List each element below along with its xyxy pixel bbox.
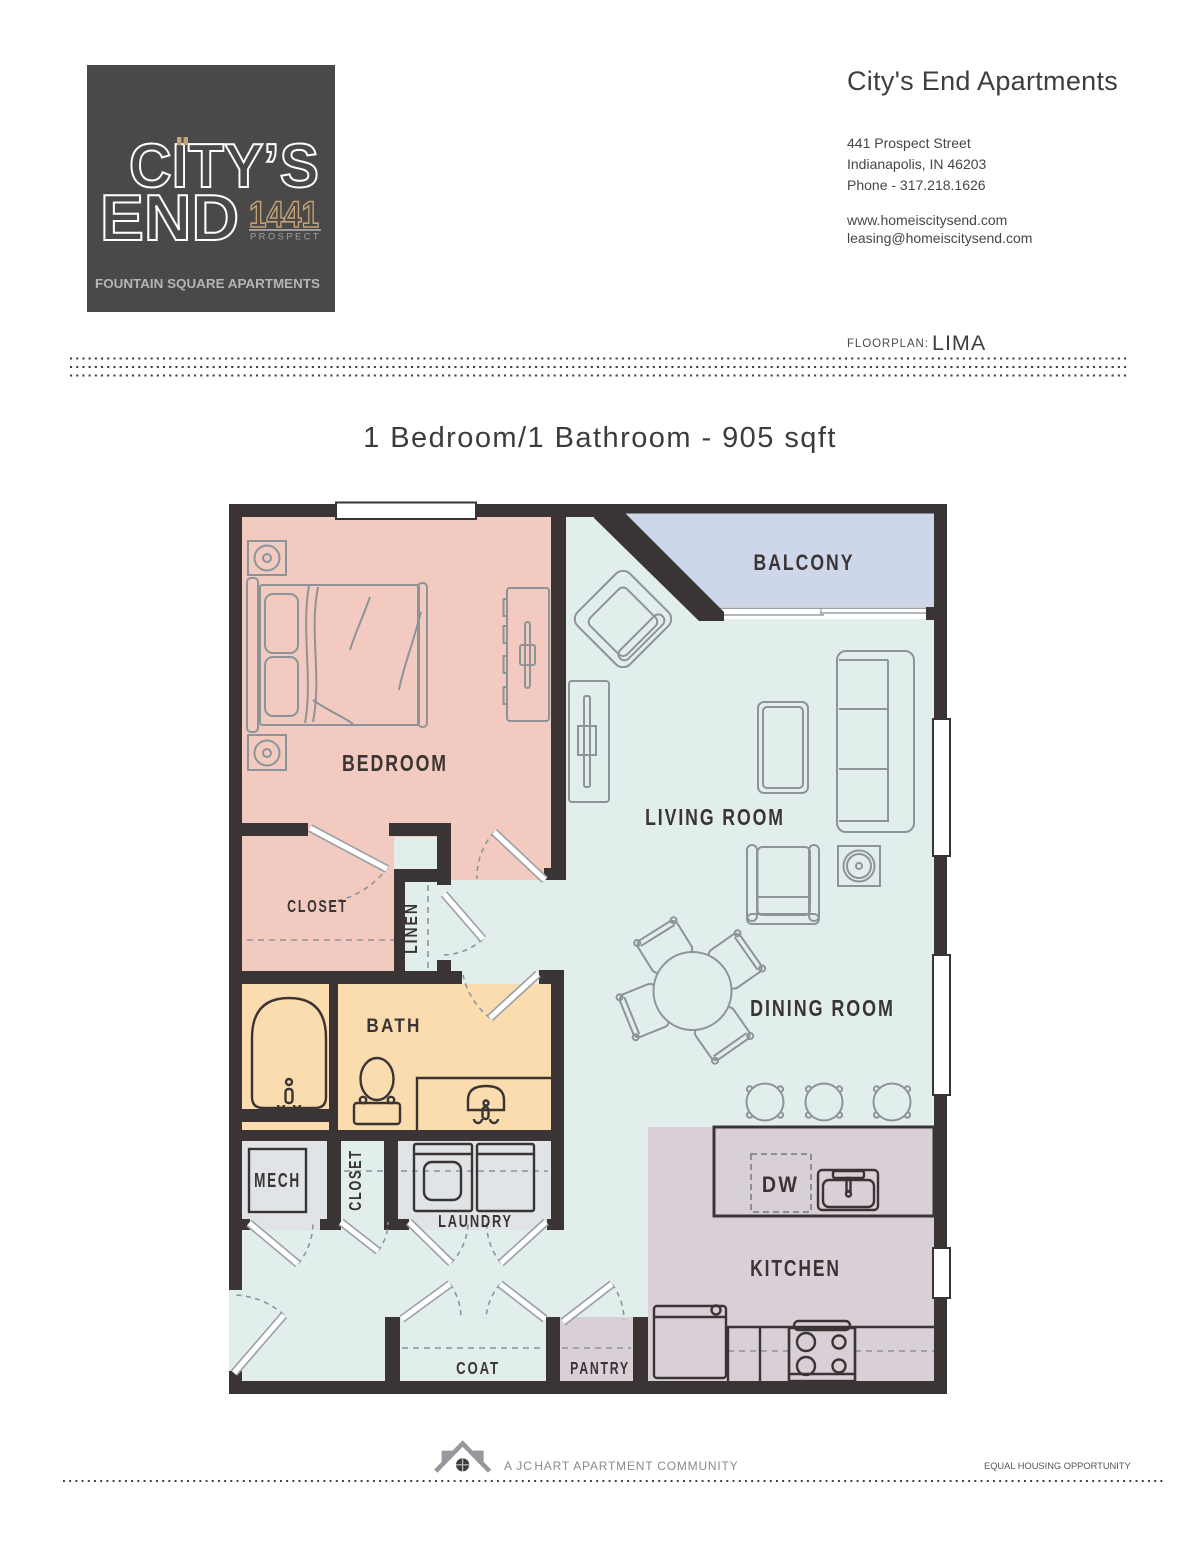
svg-text:BEDROOM: BEDROOM	[342, 751, 448, 777]
svg-text:MECH: MECH	[254, 1169, 301, 1191]
svg-text:CLOSET: CLOSET	[346, 1149, 366, 1211]
svg-text:PANTRY: PANTRY	[570, 1359, 630, 1379]
svg-text:DINING ROOM: DINING ROOM	[750, 996, 895, 1022]
svg-text:LIVING ROOM: LIVING ROOM	[645, 805, 785, 831]
svg-text:LAUNDRY: LAUNDRY	[438, 1212, 513, 1232]
svg-text:COAT: COAT	[456, 1359, 500, 1378]
svg-text:CLOSET: CLOSET	[287, 897, 348, 917]
svg-text:LINEN: LINEN	[401, 902, 421, 954]
svg-text:BALCONY: BALCONY	[754, 551, 855, 575]
svg-text:DW: DW	[762, 1173, 799, 1197]
svg-text:BATH: BATH	[366, 1014, 421, 1036]
svg-text:KITCHEN: KITCHEN	[750, 1257, 841, 1282]
